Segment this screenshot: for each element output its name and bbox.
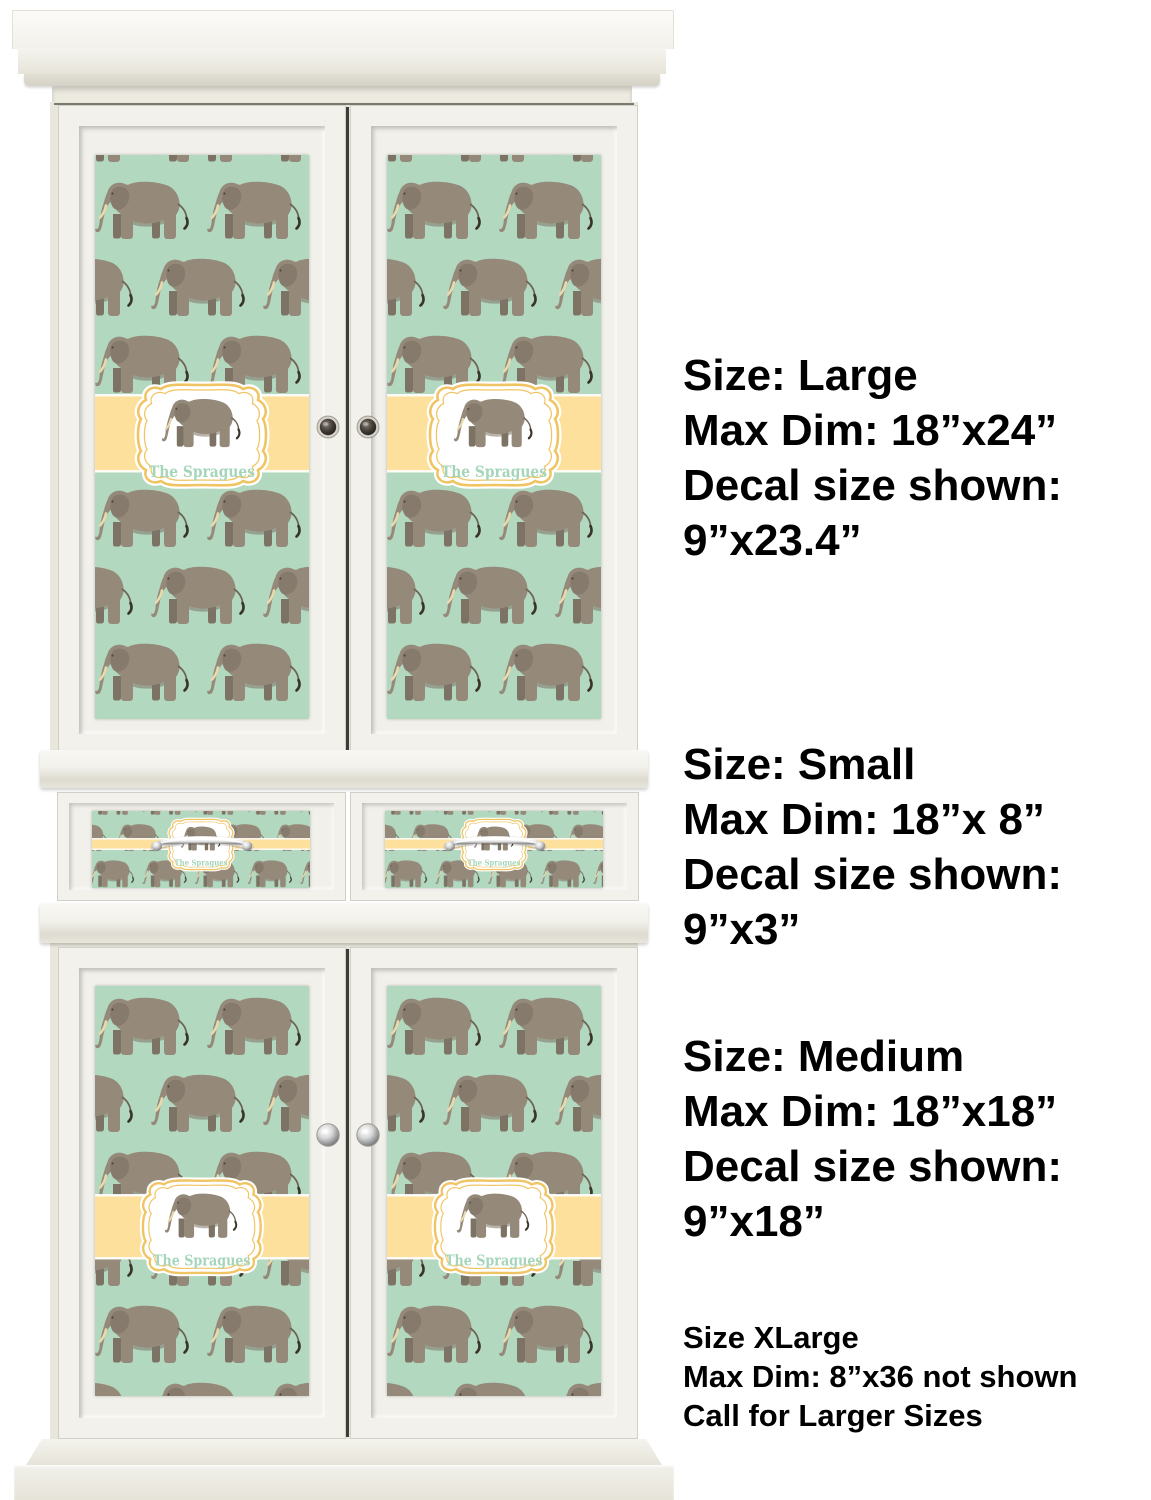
- size-annotation-xlarge: Size XLarge Max Dim: 8”x36 not shown Cal…: [683, 1318, 1077, 1435]
- size-line: Size: Large: [683, 348, 1062, 403]
- size-line: Max Dim: 18”x 8”: [683, 792, 1062, 847]
- size-annotation-medium: Size: Medium Max Dim: 18”x18” Decal size…: [683, 1029, 1062, 1249]
- door-bottom-right: [350, 947, 638, 1439]
- door-top-left: [58, 105, 346, 755]
- size-annotation-large: Size: Large Max Dim: 18”x24” Decal size …: [683, 348, 1062, 568]
- base-bevel: [26, 1439, 662, 1465]
- cabinet: [10, 6, 678, 1500]
- decal-large-left: [95, 155, 309, 719]
- door-bottom-left: [58, 947, 346, 1439]
- door-gap: [346, 107, 349, 753]
- product-preview-image: Size: Large Max Dim: 18”x24” Decal size …: [0, 0, 1151, 1500]
- size-line: Size XLarge: [683, 1318, 1077, 1357]
- drawer-handle-icon: [146, 833, 258, 855]
- size-line: Decal size shown:: [683, 847, 1062, 902]
- base-plinth: [14, 1465, 674, 1500]
- drawer-handle-icon: [439, 833, 551, 855]
- drawer-right: [350, 792, 639, 901]
- size-line: Max Dim: 18”x18”: [683, 1084, 1062, 1139]
- decal-medium-left: [95, 986, 309, 1396]
- molding-strip: [40, 750, 648, 788]
- size-line: Size: Small: [683, 737, 1062, 792]
- door-knob-icon: [356, 1123, 380, 1147]
- size-line: Max Dim: 8”x36 not shown: [683, 1357, 1077, 1396]
- size-line: 9”x3”: [683, 902, 1062, 957]
- size-line: Size: Medium: [683, 1029, 1062, 1084]
- door-gap: [346, 949, 349, 1437]
- size-line: 9”x23.4”: [683, 513, 1062, 568]
- door-knob-icon: [356, 415, 380, 439]
- crown-molding-mid: [18, 48, 666, 74]
- crown-molding-top: [12, 10, 674, 49]
- decal-large-right: [387, 155, 601, 719]
- door-top-right: [350, 105, 638, 755]
- crown-molding-lip: [24, 74, 660, 86]
- molding-strip: [40, 903, 648, 943]
- decal-medium-right: [387, 986, 601, 1396]
- drawer-left: [57, 792, 346, 901]
- door-knob-icon: [316, 415, 340, 439]
- size-line: Decal size shown:: [683, 1139, 1062, 1194]
- size-line: Decal size shown:: [683, 458, 1062, 513]
- size-annotation-small: Size: Small Max Dim: 18”x 8” Decal size …: [683, 737, 1062, 957]
- size-line: 9”x18”: [683, 1194, 1062, 1249]
- door-knob-icon: [316, 1123, 340, 1147]
- size-line: Call for Larger Sizes: [683, 1396, 1077, 1435]
- size-line: Max Dim: 18”x24”: [683, 403, 1062, 458]
